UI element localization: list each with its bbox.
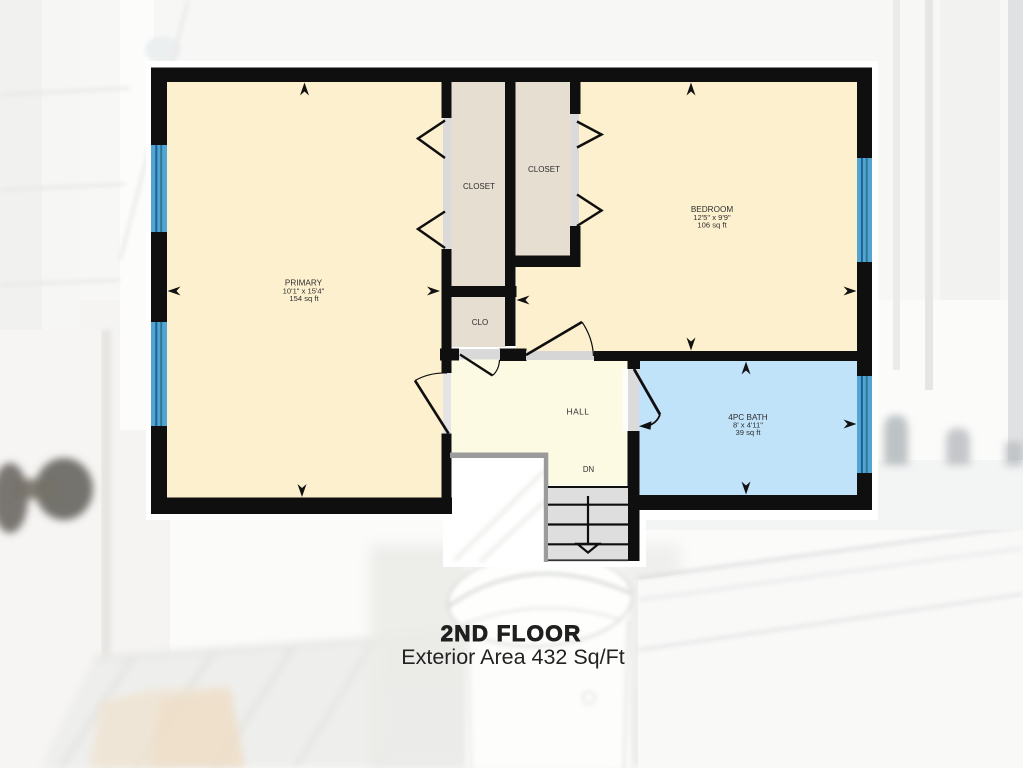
svg-text:CLO: CLO [472,318,488,327]
svg-text:154 sq ft: 154 sq ft [289,294,319,303]
svg-text:DN: DN [583,465,594,474]
svg-text:2ND FLOOR: 2ND FLOOR [441,621,582,646]
svg-text:CLOSET: CLOSET [463,182,495,191]
svg-text:HALL: HALL [567,407,590,417]
svg-text:39 sq ft: 39 sq ft [736,428,762,437]
svg-text:CLOSET: CLOSET [528,165,560,174]
svg-text:106 sq ft: 106 sq ft [697,220,727,229]
svg-text:Exterior Area 432 Sq/Ft: Exterior Area 432 Sq/Ft [401,645,624,669]
